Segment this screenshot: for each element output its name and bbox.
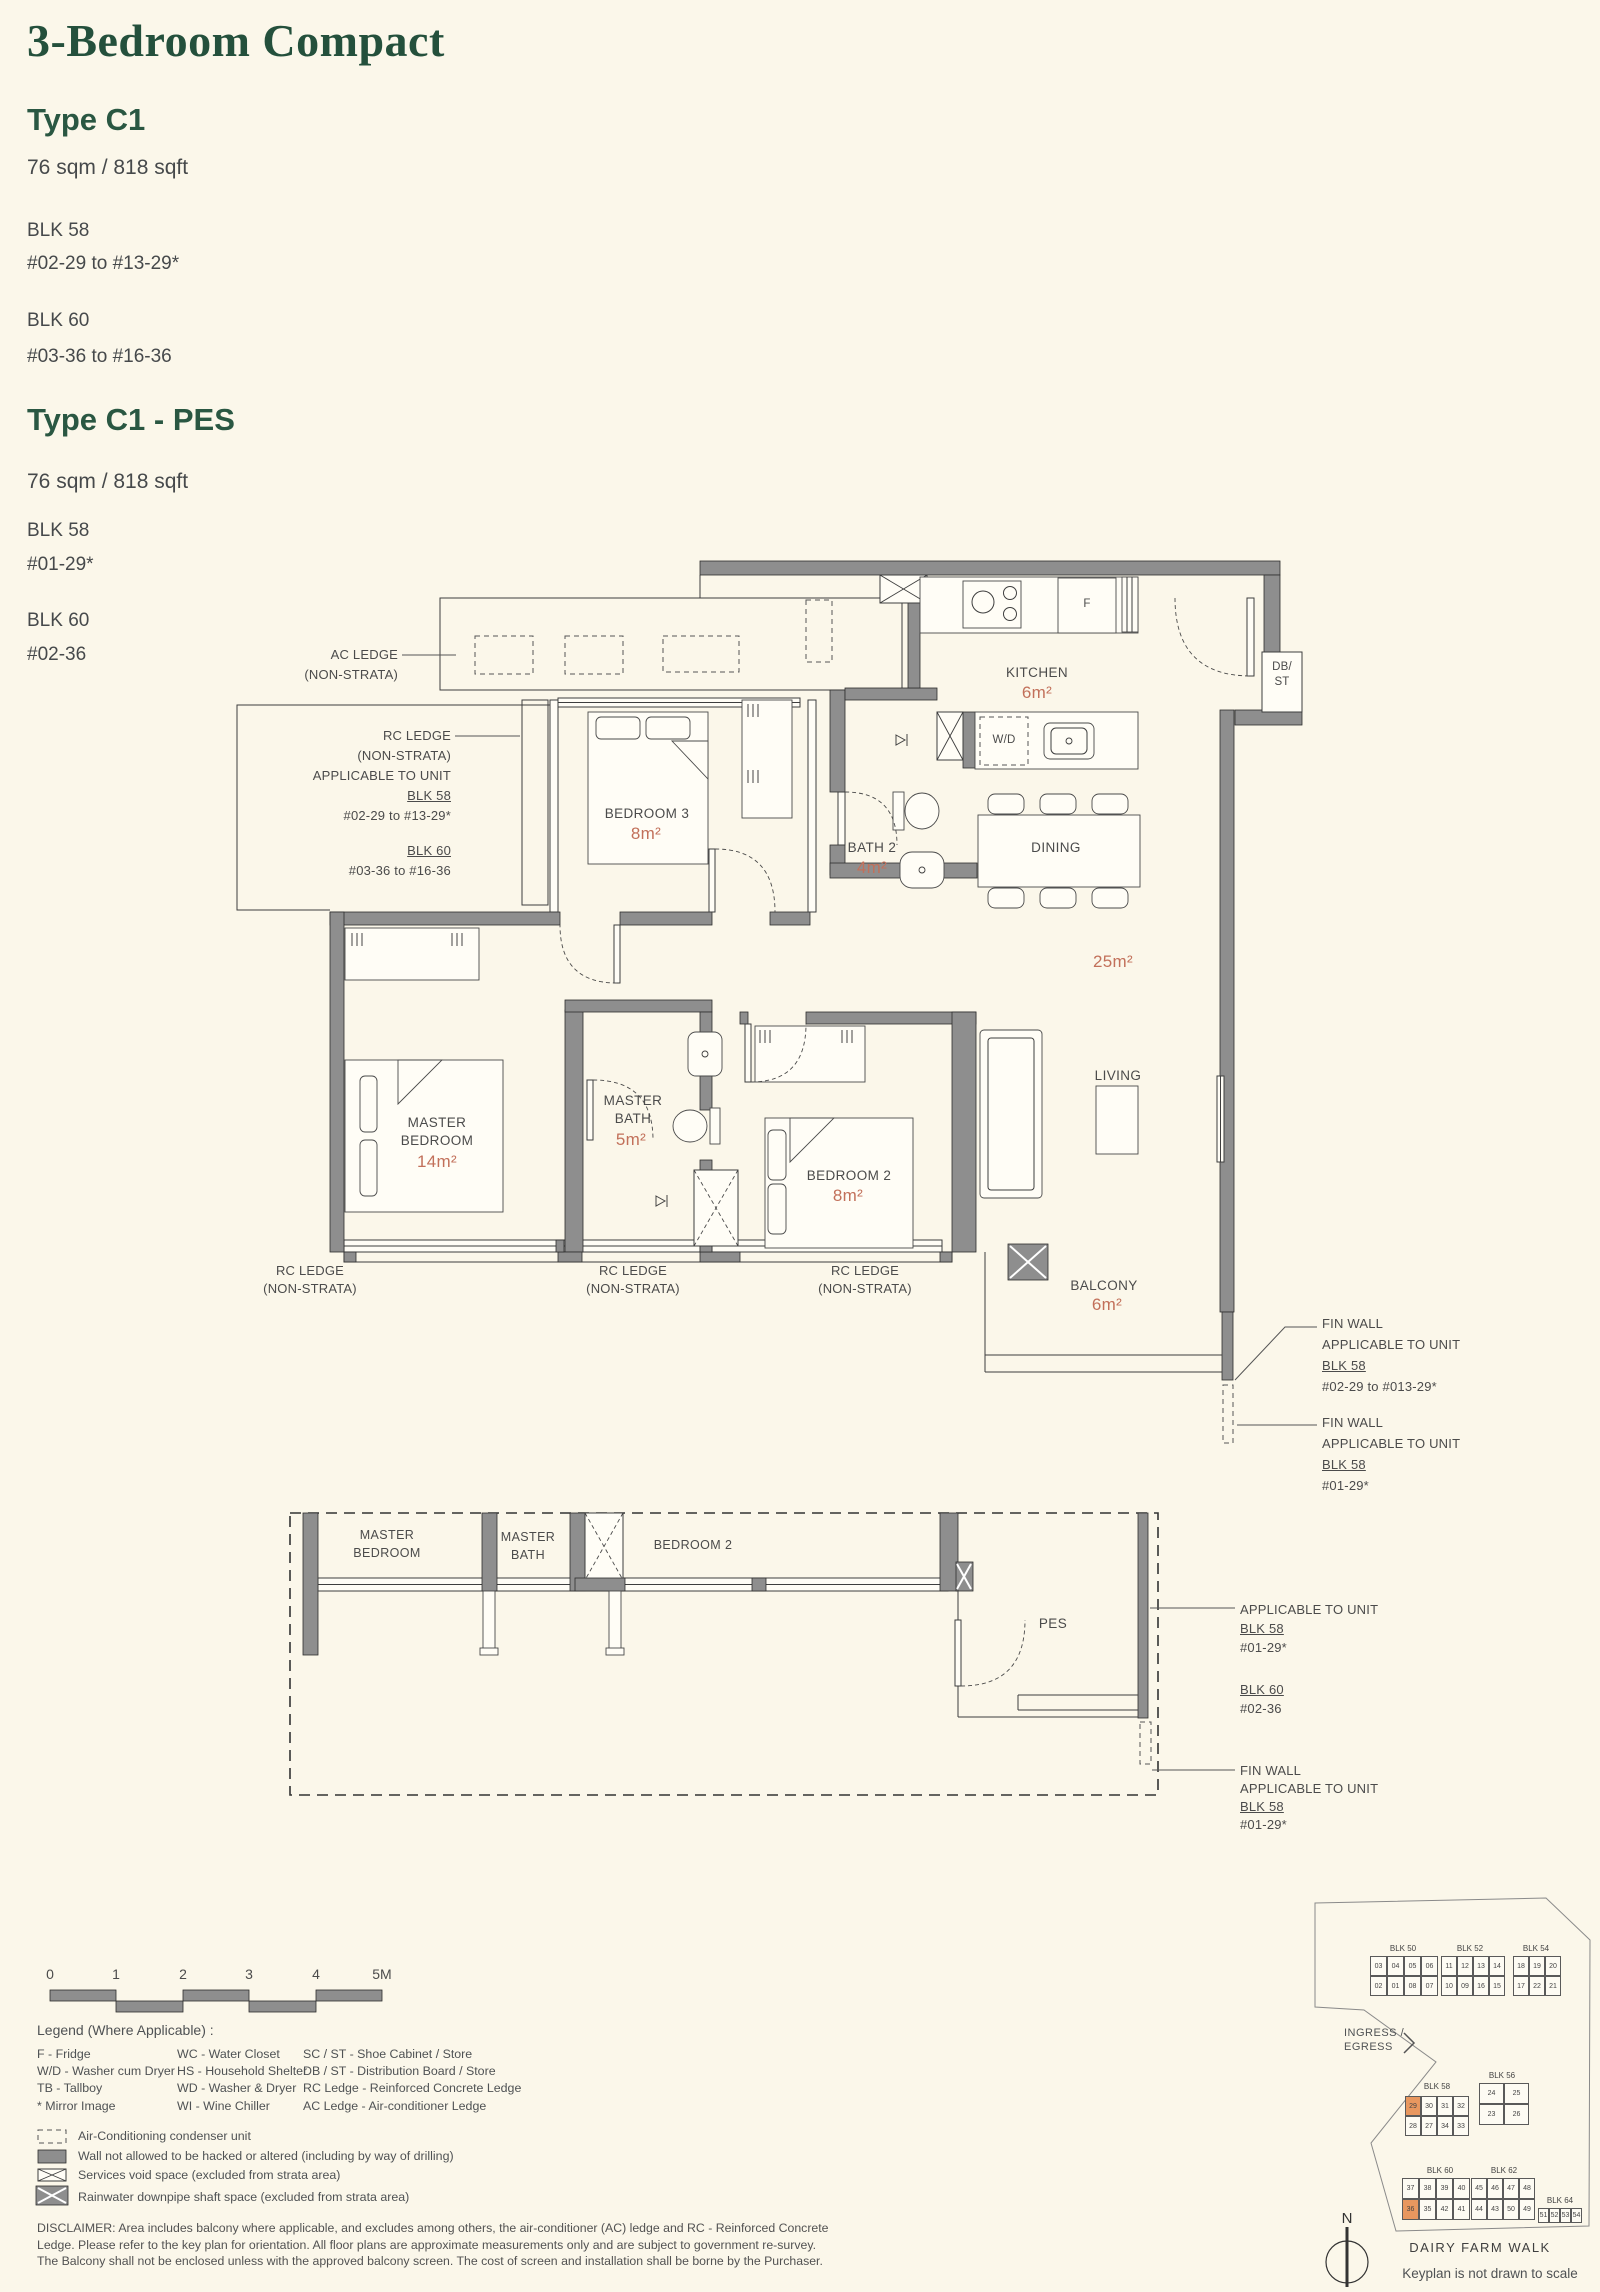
keyplan-unit-blk60-36: 36 <box>1402 2199 1419 2220</box>
keyplan-block-label: BLK 62 <box>1491 2166 1517 2175</box>
fin-wall-dashed <box>1223 1385 1233 1443</box>
keyplan-unit-blk52-12: 12 <box>1457 1956 1473 1976</box>
pes-applicable-annotation: APPLICABLE TO UNIT BLK 58 #01-29* BLK 60… <box>1240 1600 1378 1718</box>
rc-ledge-annotation: RC LEDGE(NON-STRATA)APPLICABLE TO UNIT B… <box>283 726 451 881</box>
balcony-label: BALCONY <box>1070 1278 1137 1293</box>
master-bath-fixtures <box>656 1032 738 1246</box>
keyplan-unit-blk62-48: 48 <box>1519 2178 1535 2199</box>
rc-ledge-strip <box>522 700 548 905</box>
keyplan-unit-blk54-18: 18 <box>1513 1956 1529 1976</box>
keyplan-unit-blk58-27: 27 <box>1421 2116 1437 2136</box>
keyplan-unit-blk60-37: 37 <box>1402 2178 1419 2199</box>
living-dining-area: 25m² <box>1093 952 1133 972</box>
pes-master-bath-label: MASTERBATH <box>501 1528 556 1564</box>
north-label: N <box>1342 2210 1353 2227</box>
washer-dryer-label: W/D <box>993 734 1016 746</box>
entry-door-arc <box>1175 598 1251 676</box>
bedroom3-area: 8m² <box>631 824 661 844</box>
type-c1-blk58-units: #02-29 to #13-29* <box>27 253 179 275</box>
bath2-fixtures <box>893 734 944 888</box>
scale-tick-3: 3 <box>245 1966 253 1982</box>
ingress-egress-label: INGRESS /EGRESS <box>1344 2026 1404 2054</box>
fridge-label: F <box>1083 598 1090 610</box>
keyplan-unit-blk60-40: 40 <box>1453 2178 1470 2199</box>
keyplan-unit-blk64-51: 51 <box>1538 2208 1549 2223</box>
pes-bedroom2-label: BEDROOM 2 <box>654 1538 733 1552</box>
scale-tick-2: 2 <box>179 1966 187 1982</box>
keyplan-unit-blk50-08: 08 <box>1404 1976 1421 1996</box>
fin-wall-annotation-2: FIN WALLAPPLICABLE TO UNIT BLK 58 #01-29… <box>1322 1412 1460 1496</box>
disclaimer-text: DISCLAIMER: Area includes balcony where … <box>37 2220 837 2270</box>
master-bedroom-label-1: MASTER <box>408 1115 467 1130</box>
keyplan-unit-blk62-47: 47 <box>1503 2178 1519 2199</box>
rc-ledge-bottom-label: RC LEDGE(NON-STRATA) <box>263 1262 357 1298</box>
keyplan-unit-blk64-52: 52 <box>1549 2208 1560 2223</box>
master-bath-label-2: BATH <box>615 1111 652 1126</box>
legend-symbol-ac: Air-Conditioning condenser unit <box>78 2128 251 2145</box>
plan-geometry <box>0 0 1600 2292</box>
type-c1-blk60: BLK 60 <box>27 310 89 332</box>
wc <box>673 1110 707 1142</box>
pes-master-bedroom-label: MASTERBEDROOM <box>353 1526 420 1562</box>
keyplan-unit-blk60-39: 39 <box>1436 2178 1453 2199</box>
bath2-label: BATH 2 <box>848 840 897 855</box>
balcony-area: 6m² <box>1092 1295 1122 1315</box>
keyplan-unit-blk50-01: 01 <box>1387 1976 1404 1996</box>
keyplan-unit-blk52-13: 13 <box>1473 1956 1489 1976</box>
keyplan-block-label: BLK 60 <box>1427 2166 1453 2175</box>
pes-blk60: BLK 60 <box>27 610 89 632</box>
keyplan-unit-blk60-42: 42 <box>1436 2199 1453 2220</box>
legend-symbol-wall: Wall not allowed to be hacked or altered… <box>78 2148 454 2165</box>
keyplan-unit-blk64-54: 54 <box>1571 2208 1582 2223</box>
pes-fin-dashed <box>1140 1722 1151 1764</box>
keyplan-unit-blk58-28: 28 <box>1405 2116 1421 2136</box>
legend-symbol-services: Services void space (excluded from strat… <box>78 2167 340 2184</box>
wardrobe <box>742 700 792 818</box>
keyplan-unit-blk64-53: 53 <box>1560 2208 1571 2223</box>
keyplan-unit-blk50-05: 05 <box>1404 1956 1421 1976</box>
type-c1-area: 76 sqm / 818 sqft <box>27 156 188 180</box>
type-c1-blk60-units: #03-36 to #16-36 <box>27 346 172 368</box>
type-c1-heading: Type C1 <box>27 102 145 138</box>
page-title: 3-Bedroom Compact <box>27 14 445 67</box>
legend-col2: WC - Water ClosetHS - Household ShelterW… <box>177 2046 307 2115</box>
keyplan-unit-blk52-11: 11 <box>1441 1956 1457 1976</box>
keyplan-unit-blk58-32: 32 <box>1453 2096 1469 2116</box>
keyplan-unit-blk52-10: 10 <box>1441 1976 1457 1996</box>
db-st-label: DB/ST <box>1272 660 1292 690</box>
scale-tick-0: 0 <box>46 1966 54 1982</box>
keyplan-unit-blk52-09: 09 <box>1457 1976 1473 1996</box>
ac-condenser-icon <box>38 2130 66 2143</box>
keyplan-unit-blk52-15: 15 <box>1489 1976 1505 1996</box>
keyplan-unit-blk62-50: 50 <box>1503 2199 1519 2220</box>
legend-symbol-rainwater: Rainwater downpipe shaft space (excluded… <box>78 2189 409 2206</box>
keyplan-unit-blk54-19: 19 <box>1529 1956 1545 1976</box>
floorplan-page: 3-Bedroom Compact Type C1 76 sqm / 818 s… <box>0 0 1600 2292</box>
bedroom3-label: BEDROOM 3 <box>605 806 690 821</box>
keyplan-block-label: BLK 54 <box>1523 1944 1549 1953</box>
type-c1-blk58: BLK 58 <box>27 220 89 242</box>
pes-rainwater-box <box>956 1562 973 1591</box>
pes-plan <box>290 1513 1235 1795</box>
keyplan-unit-blk58-34: 34 <box>1437 2116 1453 2136</box>
keyplan-unit-blk56-24: 24 <box>1479 2083 1504 2104</box>
scale-tick-4: 4 <box>312 1966 320 1982</box>
scale-bar <box>50 1990 382 2012</box>
keyplan-unit-blk58-30: 30 <box>1421 2096 1437 2116</box>
pes-blk60-units: #02-36 <box>27 644 86 666</box>
street-label: DAIRY FARM WALK <box>1409 2240 1550 2255</box>
keyplan-unit-blk60-41: 41 <box>1453 2199 1470 2220</box>
keyplan-unit-blk52-16: 16 <box>1473 1976 1489 1996</box>
tv-console <box>1096 1086 1138 1154</box>
ac-ledge <box>440 575 902 690</box>
keyplan-unit-blk60-38: 38 <box>1419 2178 1436 2199</box>
bed <box>765 1118 913 1248</box>
rc-ledge-bottom-label: RC LEDGE(NON-STRATA) <box>818 1262 912 1298</box>
keyplan-note: Keyplan is not drawn to scale <box>1402 2266 1578 2281</box>
bedroom2-fixtures <box>755 1026 913 1248</box>
keyplan-unit-blk58-33: 33 <box>1453 2116 1469 2136</box>
hob <box>963 581 1021 628</box>
master-bedroom-area: 14m² <box>417 1152 457 1172</box>
keyplan-unit-blk50-04: 04 <box>1387 1956 1404 1976</box>
pes-door-arc <box>961 1620 1025 1686</box>
bedroom2-label: BEDROOM 2 <box>807 1168 892 1183</box>
bath2-area: 4m² <box>857 858 887 878</box>
living-label: LIVING <box>1095 1068 1142 1083</box>
legend-icons <box>36 2130 68 2205</box>
keyplan-unit-blk54-21: 21 <box>1545 1976 1561 1996</box>
keyplan-unit-blk56-26: 26 <box>1504 2104 1529 2125</box>
keyplan-block-label: BLK 64 <box>1547 2196 1573 2205</box>
legend-col1: F - FridgeW/D - Washer cum DryerTB - Tal… <box>37 2046 175 2115</box>
keyplan-unit-blk50-03: 03 <box>1370 1956 1387 1976</box>
wall-icon <box>38 2150 66 2163</box>
rc-ledge-bottom-label: RC LEDGE(NON-STRATA) <box>586 1262 680 1298</box>
keyplan-unit-blk52-14: 14 <box>1489 1956 1505 1976</box>
keyplan-unit-blk56-23: 23 <box>1479 2104 1504 2125</box>
keyplan-unit-blk62-44: 44 <box>1471 2199 1487 2220</box>
keyplan-unit-blk50-02: 02 <box>1370 1976 1387 1996</box>
keyplan-unit-blk62-43: 43 <box>1487 2199 1503 2220</box>
north-arrow-icon <box>1326 2227 1368 2287</box>
dining-label: DINING <box>1031 840 1081 855</box>
type-c1-pes-heading: Type C1 - PES <box>27 402 235 438</box>
keyplan-block-label: BLK 56 <box>1489 2071 1515 2080</box>
keyplan-unit-blk62-49: 49 <box>1519 2199 1535 2220</box>
kitchen-area: 6m² <box>1022 683 1052 703</box>
keyplan-block-label: BLK 50 <box>1390 1944 1416 1953</box>
fin-wall-annotation-1: FIN WALLAPPLICABLE TO UNIT BLK 58 #02-29… <box>1322 1313 1460 1397</box>
master-bath-label-1: MASTER <box>604 1093 663 1108</box>
keyplan-unit-blk56-25: 25 <box>1504 2083 1529 2104</box>
legend-title: Legend (Where Applicable) : <box>37 2022 214 2038</box>
pes-label: PES <box>1039 1616 1067 1631</box>
keyplan-unit-blk50-06: 06 <box>1421 1956 1438 1976</box>
pes-fin-wall-annotation: FIN WALLAPPLICABLE TO UNIT BLK 58 #01-29… <box>1240 1762 1378 1834</box>
keyplan-unit-blk62-45: 45 <box>1471 2178 1487 2199</box>
rainwater-downpipe-box <box>1008 1244 1048 1280</box>
scale-tick-1: 1 <box>112 1966 120 1982</box>
bedroom2-area: 8m² <box>833 1186 863 1206</box>
keyplan-unit-blk58-31: 31 <box>1437 2096 1453 2116</box>
sofa <box>980 1030 1042 1198</box>
keyplan-unit-blk62-46: 46 <box>1487 2178 1503 2199</box>
legend-col3: SC / ST - Shoe Cabinet / StoreDB / ST - … <box>303 2046 521 2115</box>
living-fixtures <box>980 1030 1138 1198</box>
keyplan-unit-blk54-17: 17 <box>1513 1976 1529 1996</box>
keyplan-unit-blk54-20: 20 <box>1545 1956 1561 1976</box>
pes-blk58: BLK 58 <box>27 520 89 542</box>
main-plan <box>237 561 1317 1443</box>
keyplan-unit-blk58-29: 29 <box>1405 2096 1421 2116</box>
scale-tick-5: 5M <box>372 1966 391 1982</box>
keyplan-block-label: BLK 52 <box>1457 1944 1483 1953</box>
pes-blk58-units: #01-29* <box>27 554 94 576</box>
rainwater-icon <box>36 2186 68 2205</box>
keyplan-block-label: BLK 58 <box>1424 2082 1450 2091</box>
wardrobe <box>755 1026 865 1082</box>
keyplan-unit-blk60-35: 35 <box>1419 2199 1436 2220</box>
ac-ledge-annotation: AC LEDGE(NON-STRATA) <box>250 645 398 685</box>
master-bedroom-label-2: BEDROOM <box>401 1133 474 1148</box>
type-c1-pes-area: 76 sqm / 818 sqft <box>27 470 188 494</box>
kitchen-label: KITCHEN <box>1006 665 1068 680</box>
keyplan-unit-blk54-22: 22 <box>1529 1976 1545 1996</box>
master-bath-area: 5m² <box>616 1130 646 1150</box>
sink <box>688 1032 722 1076</box>
wardrobe <box>345 928 479 980</box>
keyplan-unit-blk50-07: 07 <box>1421 1976 1438 1996</box>
